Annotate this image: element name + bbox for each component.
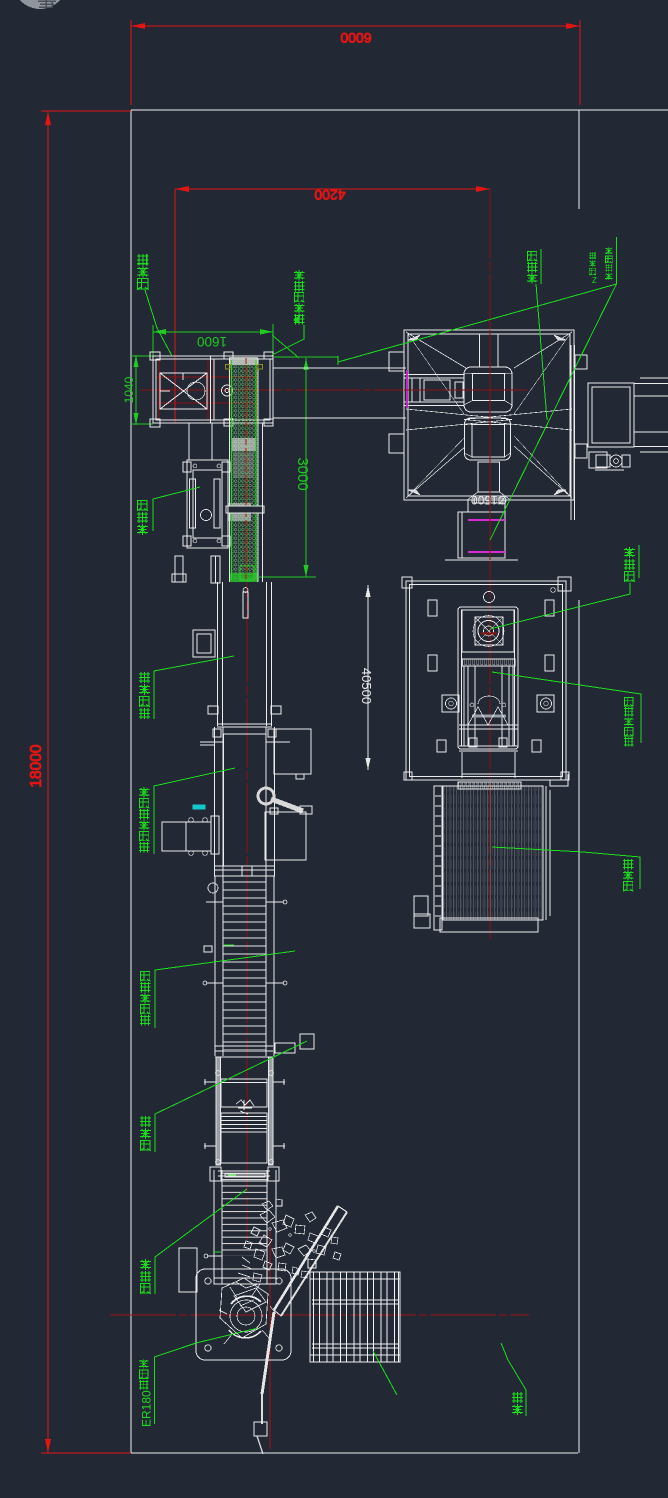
svg-text:1600: 1600 (197, 334, 227, 349)
svg-text:6000: 6000 (340, 30, 371, 46)
svg-text:4200: 4200 (314, 187, 345, 203)
svg-text:1040: 1040 (122, 376, 136, 403)
svg-text:ER180: ER180 (140, 1390, 154, 1427)
svg-text:Z: Z (592, 276, 597, 285)
svg-text:3000: 3000 (294, 457, 311, 490)
svg-text:40500: 40500 (359, 668, 374, 704)
svg-text:18000: 18000 (28, 744, 45, 787)
